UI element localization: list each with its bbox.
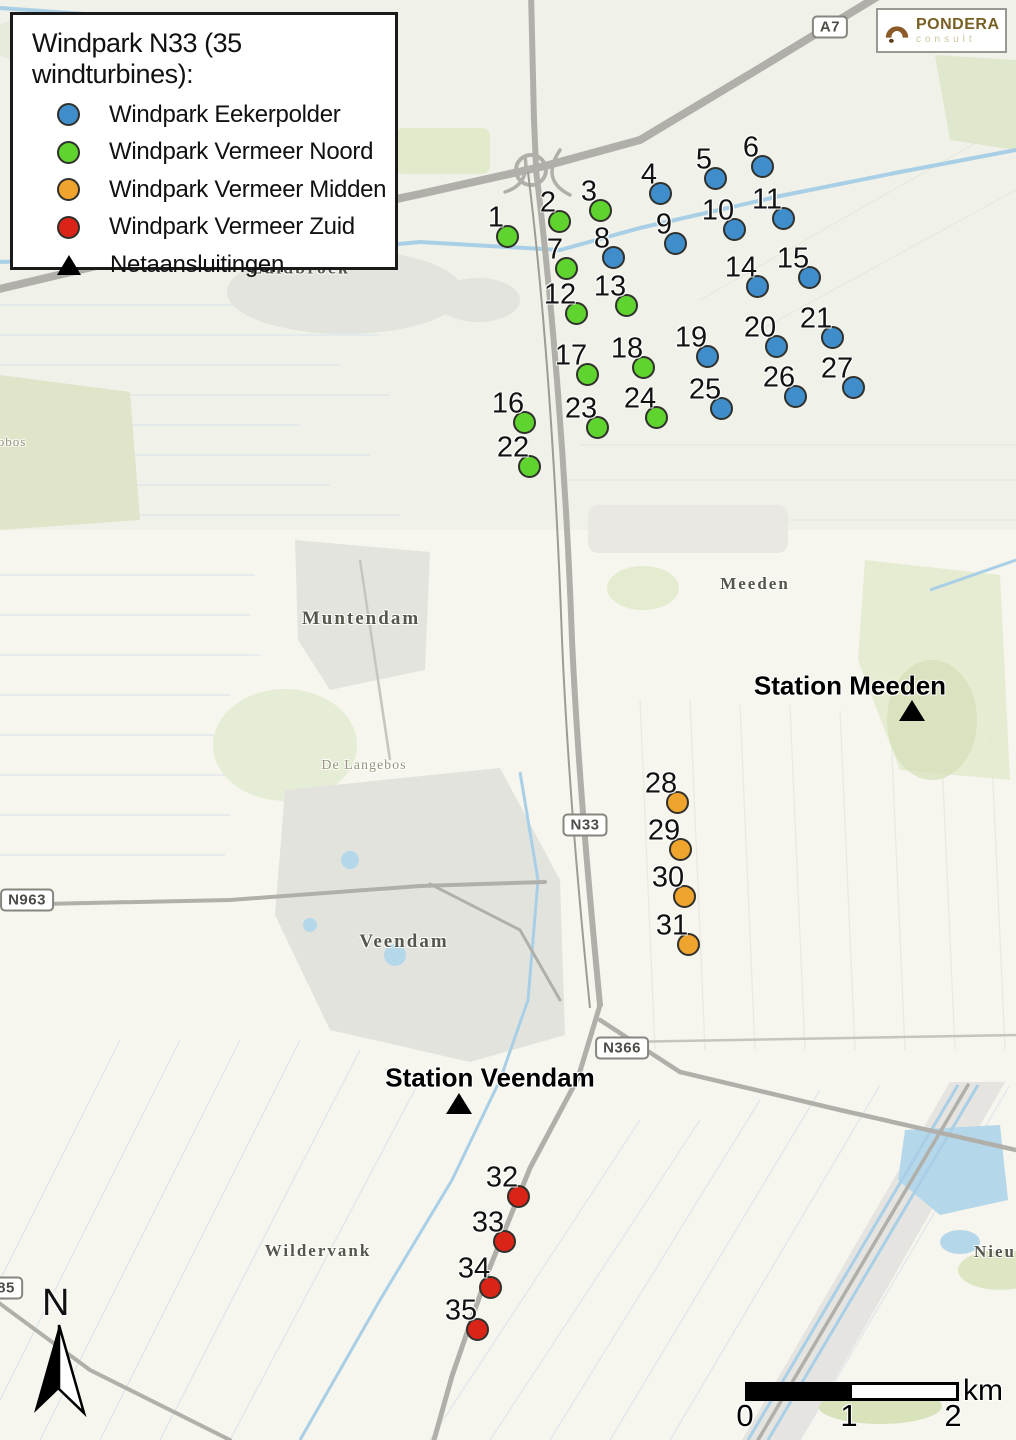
station-label-station-veendam: Station Veendam xyxy=(385,1063,595,1094)
legend-item-2: Windpark Vermeer Midden xyxy=(13,171,395,209)
turbine-label-14: 14 xyxy=(725,252,757,285)
pondera-arch-icon xyxy=(882,17,912,45)
turbine-label-34: 34 xyxy=(458,1253,490,1286)
circle-marker-icon xyxy=(57,103,80,126)
legend-item-3: Windpark Vermeer Zuid xyxy=(13,209,395,247)
turbine-label-26: 26 xyxy=(763,362,795,395)
turbine-label-9: 9 xyxy=(656,209,672,242)
logo-subtitle: consult xyxy=(916,35,1000,45)
turbine-label-6: 6 xyxy=(743,132,759,165)
station-label-station-meeden: Station Meeden xyxy=(754,671,946,702)
turbine-label-3: 3 xyxy=(581,176,597,209)
place-label-nieu: Nieu xyxy=(974,1242,1016,1262)
legend-item-1: Windpark Vermeer Noord xyxy=(13,134,395,172)
turbine-label-8: 8 xyxy=(594,223,610,256)
place-label-de-langebos: De Langebos xyxy=(321,758,406,774)
pondera-logo: PONDERA consult xyxy=(876,8,1007,53)
legend-items: Windpark EekerpolderWindpark Vermeer Noo… xyxy=(13,96,395,284)
legend-item-label: Netaansluitingen xyxy=(110,251,284,279)
place-label-meeden: Meeden xyxy=(720,574,790,594)
legend-item-0: Windpark Eekerpolder xyxy=(13,96,395,134)
turbine-label-22: 22 xyxy=(497,432,529,465)
legend-item-label: Windpark Vermeer Midden xyxy=(109,176,386,204)
place-label-muntendam: Muntendam xyxy=(302,608,420,630)
triangle-marker-icon xyxy=(57,255,81,275)
map-canvas: ZuidbroekMeedenMuntendamDe LangebosVeend… xyxy=(0,0,1016,1440)
turbine-label-11: 11 xyxy=(752,184,782,217)
legend-title: Windpark N33 (35 windturbines): xyxy=(32,28,395,90)
turbine-label-24: 24 xyxy=(624,383,656,416)
circle-marker-icon xyxy=(57,216,80,239)
logo-name: PONDERA xyxy=(916,17,1000,33)
road-shield-n33: N33 xyxy=(562,814,607,837)
scale-bar-filled-segment xyxy=(748,1385,852,1398)
north-arrow: N xyxy=(20,1282,100,1421)
turbine-label-32: 32 xyxy=(486,1162,518,1195)
turbine-label-12: 12 xyxy=(544,279,576,312)
scale-bar-unit: km xyxy=(963,1374,1003,1408)
road-shield-n963: N963 xyxy=(0,889,54,912)
turbine-label-1: 1 xyxy=(488,202,504,235)
turbine-label-27: 27 xyxy=(821,353,853,386)
legend-item-label: Windpark Vermeer Zuid xyxy=(109,213,355,241)
turbine-label-29: 29 xyxy=(648,815,680,848)
road-shield-a7: A7 xyxy=(812,16,848,39)
turbine-label-16: 16 xyxy=(492,388,524,421)
circle-marker-icon xyxy=(57,178,80,201)
scale-bar: km 012 xyxy=(745,1382,959,1401)
turbine-label-21: 21 xyxy=(800,303,832,336)
place-label-wildervank: Wildervank xyxy=(265,1241,372,1261)
turbine-label-15: 15 xyxy=(777,243,809,276)
turbine-label-33: 33 xyxy=(472,1207,504,1240)
grid-connection-triangle-icon xyxy=(446,1093,472,1114)
legend-box: Windpark N33 (35 windturbines): Windpark… xyxy=(10,12,398,270)
turbine-label-23: 23 xyxy=(565,393,597,426)
north-letter: N xyxy=(42,1282,100,1325)
turbine-label-30: 30 xyxy=(652,862,684,895)
turbine-label-17: 17 xyxy=(555,340,587,373)
turbine-label-31: 31 xyxy=(656,910,688,943)
legend-item-label: Windpark Vermeer Noord xyxy=(109,138,373,166)
legend-item-label: Windpark Eekerpolder xyxy=(109,101,340,129)
turbine-label-5: 5 xyxy=(696,144,712,177)
legend-item-4: Netaansluitingen xyxy=(13,246,395,284)
scale-tick-0: 0 xyxy=(736,1398,753,1434)
place-label-obos: obos xyxy=(0,434,26,450)
road-shield-n366: N366 xyxy=(595,1037,649,1060)
turbine-label-20: 20 xyxy=(744,312,776,345)
turbine-label-7: 7 xyxy=(547,234,563,267)
turbine-label-18: 18 xyxy=(611,333,643,366)
turbine-label-25: 25 xyxy=(689,374,721,407)
turbine-label-4: 4 xyxy=(641,159,657,192)
turbine-label-19: 19 xyxy=(675,322,707,355)
turbine-label-2: 2 xyxy=(540,187,556,220)
grid-connection-triangle-icon xyxy=(899,700,925,721)
turbine-label-28: 28 xyxy=(645,768,677,801)
compass-needle-icon xyxy=(20,1321,100,1421)
turbine-label-13: 13 xyxy=(594,271,626,304)
scale-tick-1: 1 xyxy=(840,1398,857,1434)
circle-marker-icon xyxy=(57,141,80,164)
place-label-veendam: Veendam xyxy=(359,931,448,953)
turbine-label-10: 10 xyxy=(702,195,734,228)
scale-tick-2: 2 xyxy=(944,1398,961,1434)
turbine-label-35: 35 xyxy=(445,1295,477,1328)
